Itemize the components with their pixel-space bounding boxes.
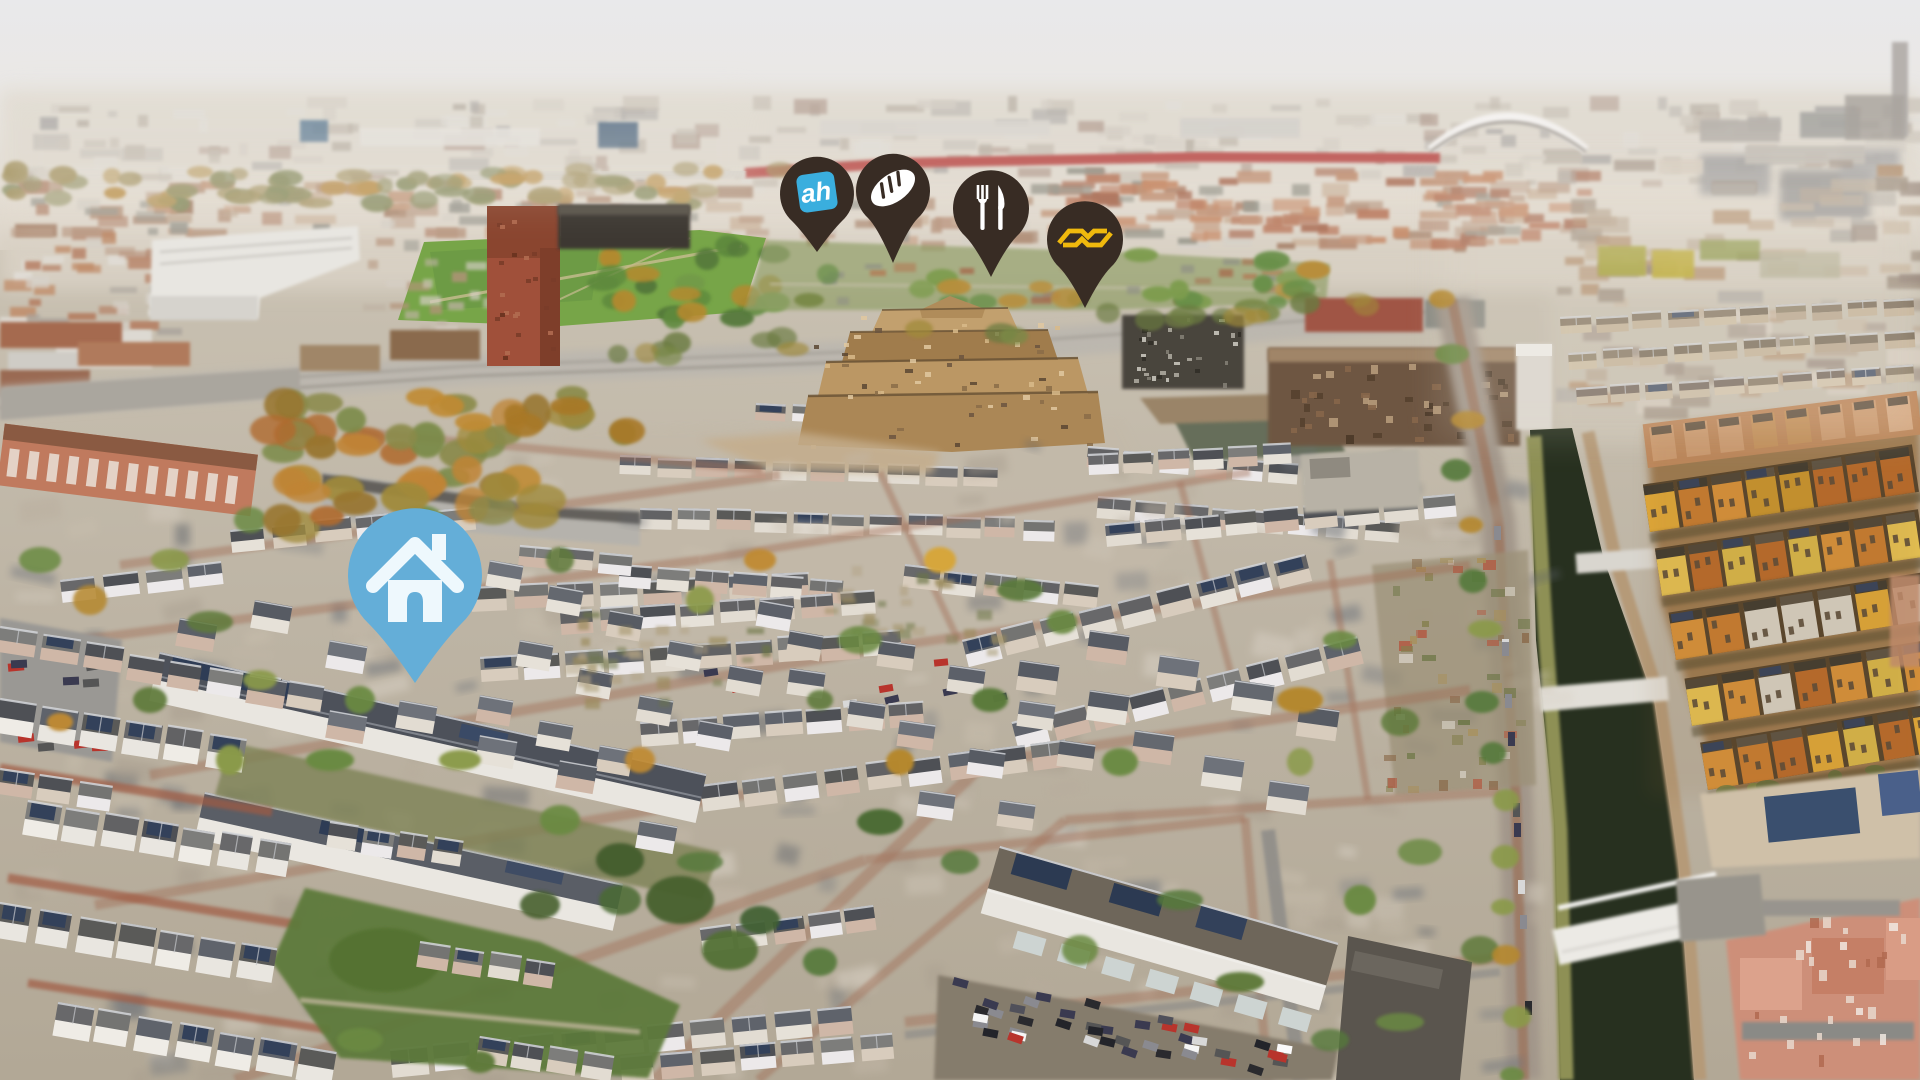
svg-text:ah: ah	[799, 175, 833, 209]
